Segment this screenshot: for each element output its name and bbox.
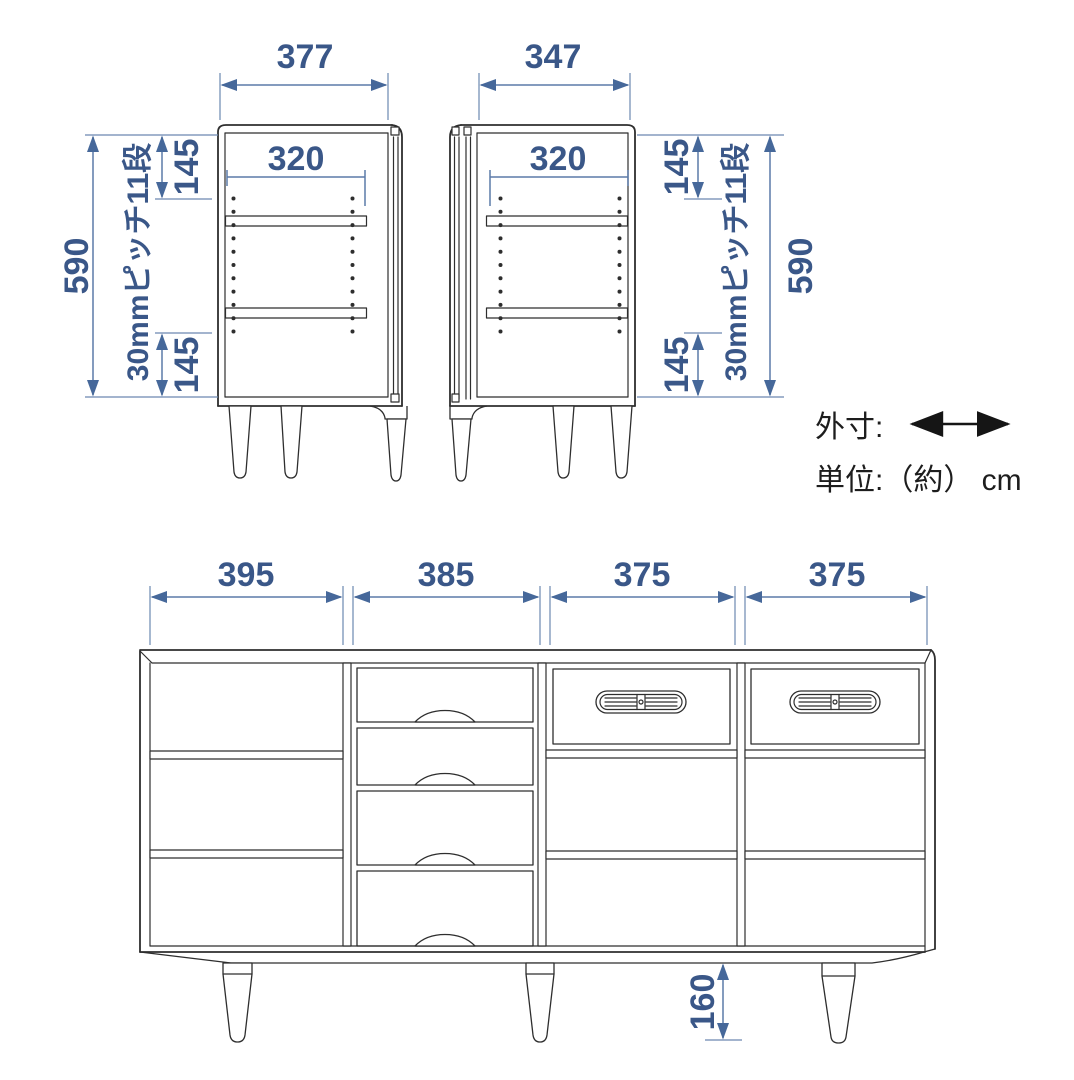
dim-label-145-right-top: 145 (658, 139, 696, 196)
furniture-dimension-diagram: 377 347 320 320 590 145 145 30mmピッチ11段 (0, 0, 1074, 1080)
dim-label-320-left: 320 (268, 140, 325, 178)
diagram-canvas: 377 347 320 320 590 145 145 30mmピッチ11段 (0, 0, 1074, 1080)
dim-label-320-right: 320 (530, 140, 587, 178)
unit-label: 単位:（約） cm (815, 464, 1022, 497)
dim-label-377: 377 (277, 38, 334, 76)
dim-label-160: 160 (684, 974, 722, 1031)
door-bottom-hook (391, 394, 399, 402)
dim-label-590-left: 590 (58, 238, 96, 295)
pitch-note-right: 30mmピッチ11段 (719, 143, 753, 381)
pitch-note-left: 30mmピッチ11段 (121, 143, 155, 381)
outer-dimension-label: 外寸: (815, 411, 883, 444)
door-top-hook (452, 127, 459, 135)
dim-label-145-left-bottom: 145 (168, 337, 206, 394)
door-top-hook (464, 127, 471, 135)
door-bottom-hook (452, 394, 459, 402)
dim-label-385: 385 (418, 556, 475, 594)
dim-label-395: 395 (218, 556, 275, 594)
dim-label-347: 347 (525, 38, 582, 76)
dim-label-375-a: 375 (614, 556, 671, 594)
dim-label-145-right-bottom: 145 (658, 337, 696, 394)
door-top-hook (391, 127, 399, 135)
dim-label-375-b: 375 (809, 556, 866, 594)
dim-label-145-left-top: 145 (168, 139, 206, 196)
dim-label-590-right: 590 (782, 238, 820, 295)
